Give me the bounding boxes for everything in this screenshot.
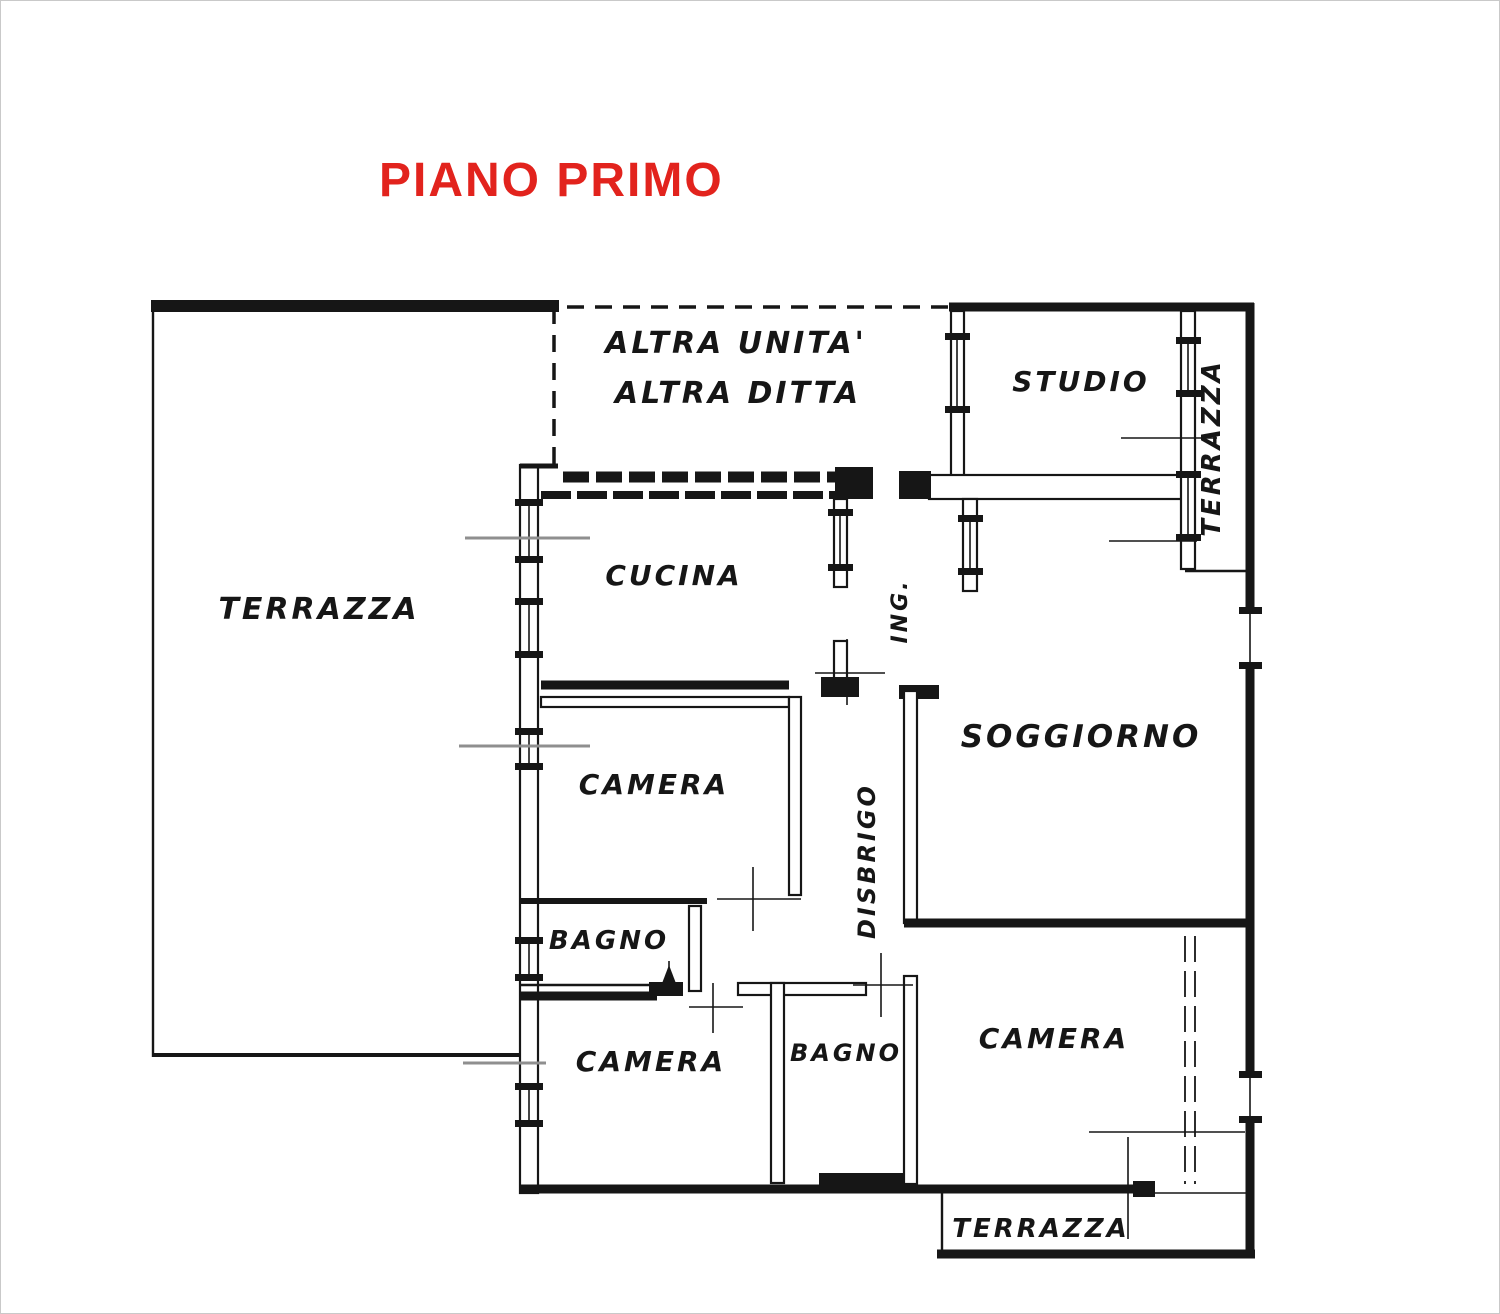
room-label-altra-ditta: ALTRA DITTA — [613, 376, 861, 411]
room-label-camera-center: CAMERA — [579, 768, 729, 801]
room-label-bagno-left: BAGNO — [549, 926, 669, 956]
room-label-disbrigo: DISBRIGO — [853, 783, 881, 939]
room-label-studio: STUDIO — [1012, 365, 1149, 398]
room-label-terrazza-right: TERRAZZA — [1197, 359, 1227, 537]
room-label-camera-bottom-right: CAMERA — [979, 1022, 1129, 1055]
room-label-altra-unita: ALTRA UNITA' — [603, 326, 867, 361]
room-label-terrazza-left: TERRAZZA — [218, 592, 419, 627]
terrace-left-walls — [151, 300, 559, 1057]
floor-plan: TERRAZZA ALTRA UNITA' ALTRA DITTA STUDIO… — [1, 1, 1500, 1314]
room-label-soggiorno: SOGGIORNO — [961, 719, 1202, 755]
room-label-terrazza-bottom: TERRAZZA — [952, 1214, 1130, 1244]
hall-and-livingroom-walls — [899, 499, 1250, 923]
room-label-bagno-center: BAGNO — [790, 1039, 902, 1067]
room-label-cucina: CUCINA — [605, 559, 742, 592]
room-label-camera-bottom-left: CAMERA — [576, 1045, 726, 1078]
room-label-ingresso: ING. — [888, 578, 913, 643]
floorplan-page: PIANO PRIMO — [0, 0, 1500, 1314]
